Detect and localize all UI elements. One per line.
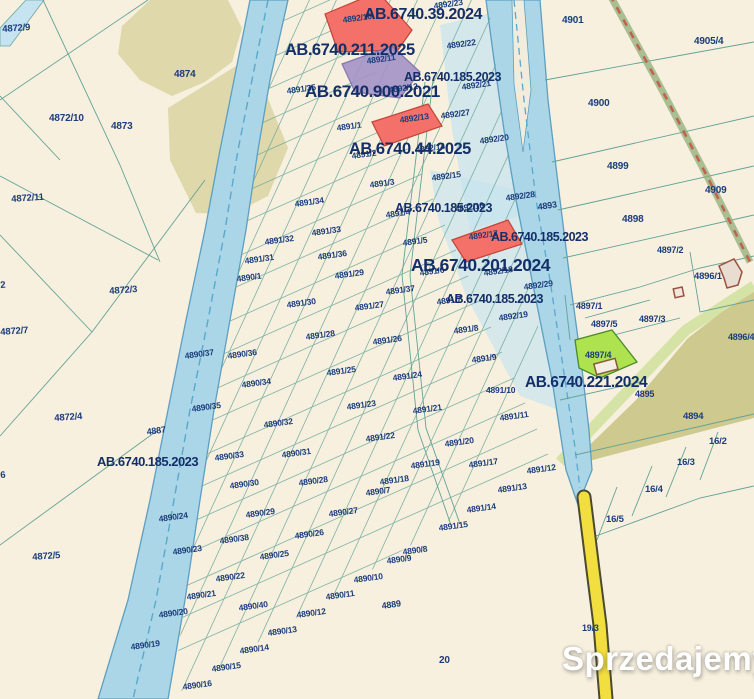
- map-background: [0, 0, 754, 699]
- map-canvas[interactable]: 4872/948744872/1048734872/1124872/34872/…: [0, 0, 754, 699]
- map-base-layer: [0, 0, 754, 699]
- building-outline: [673, 287, 684, 298]
